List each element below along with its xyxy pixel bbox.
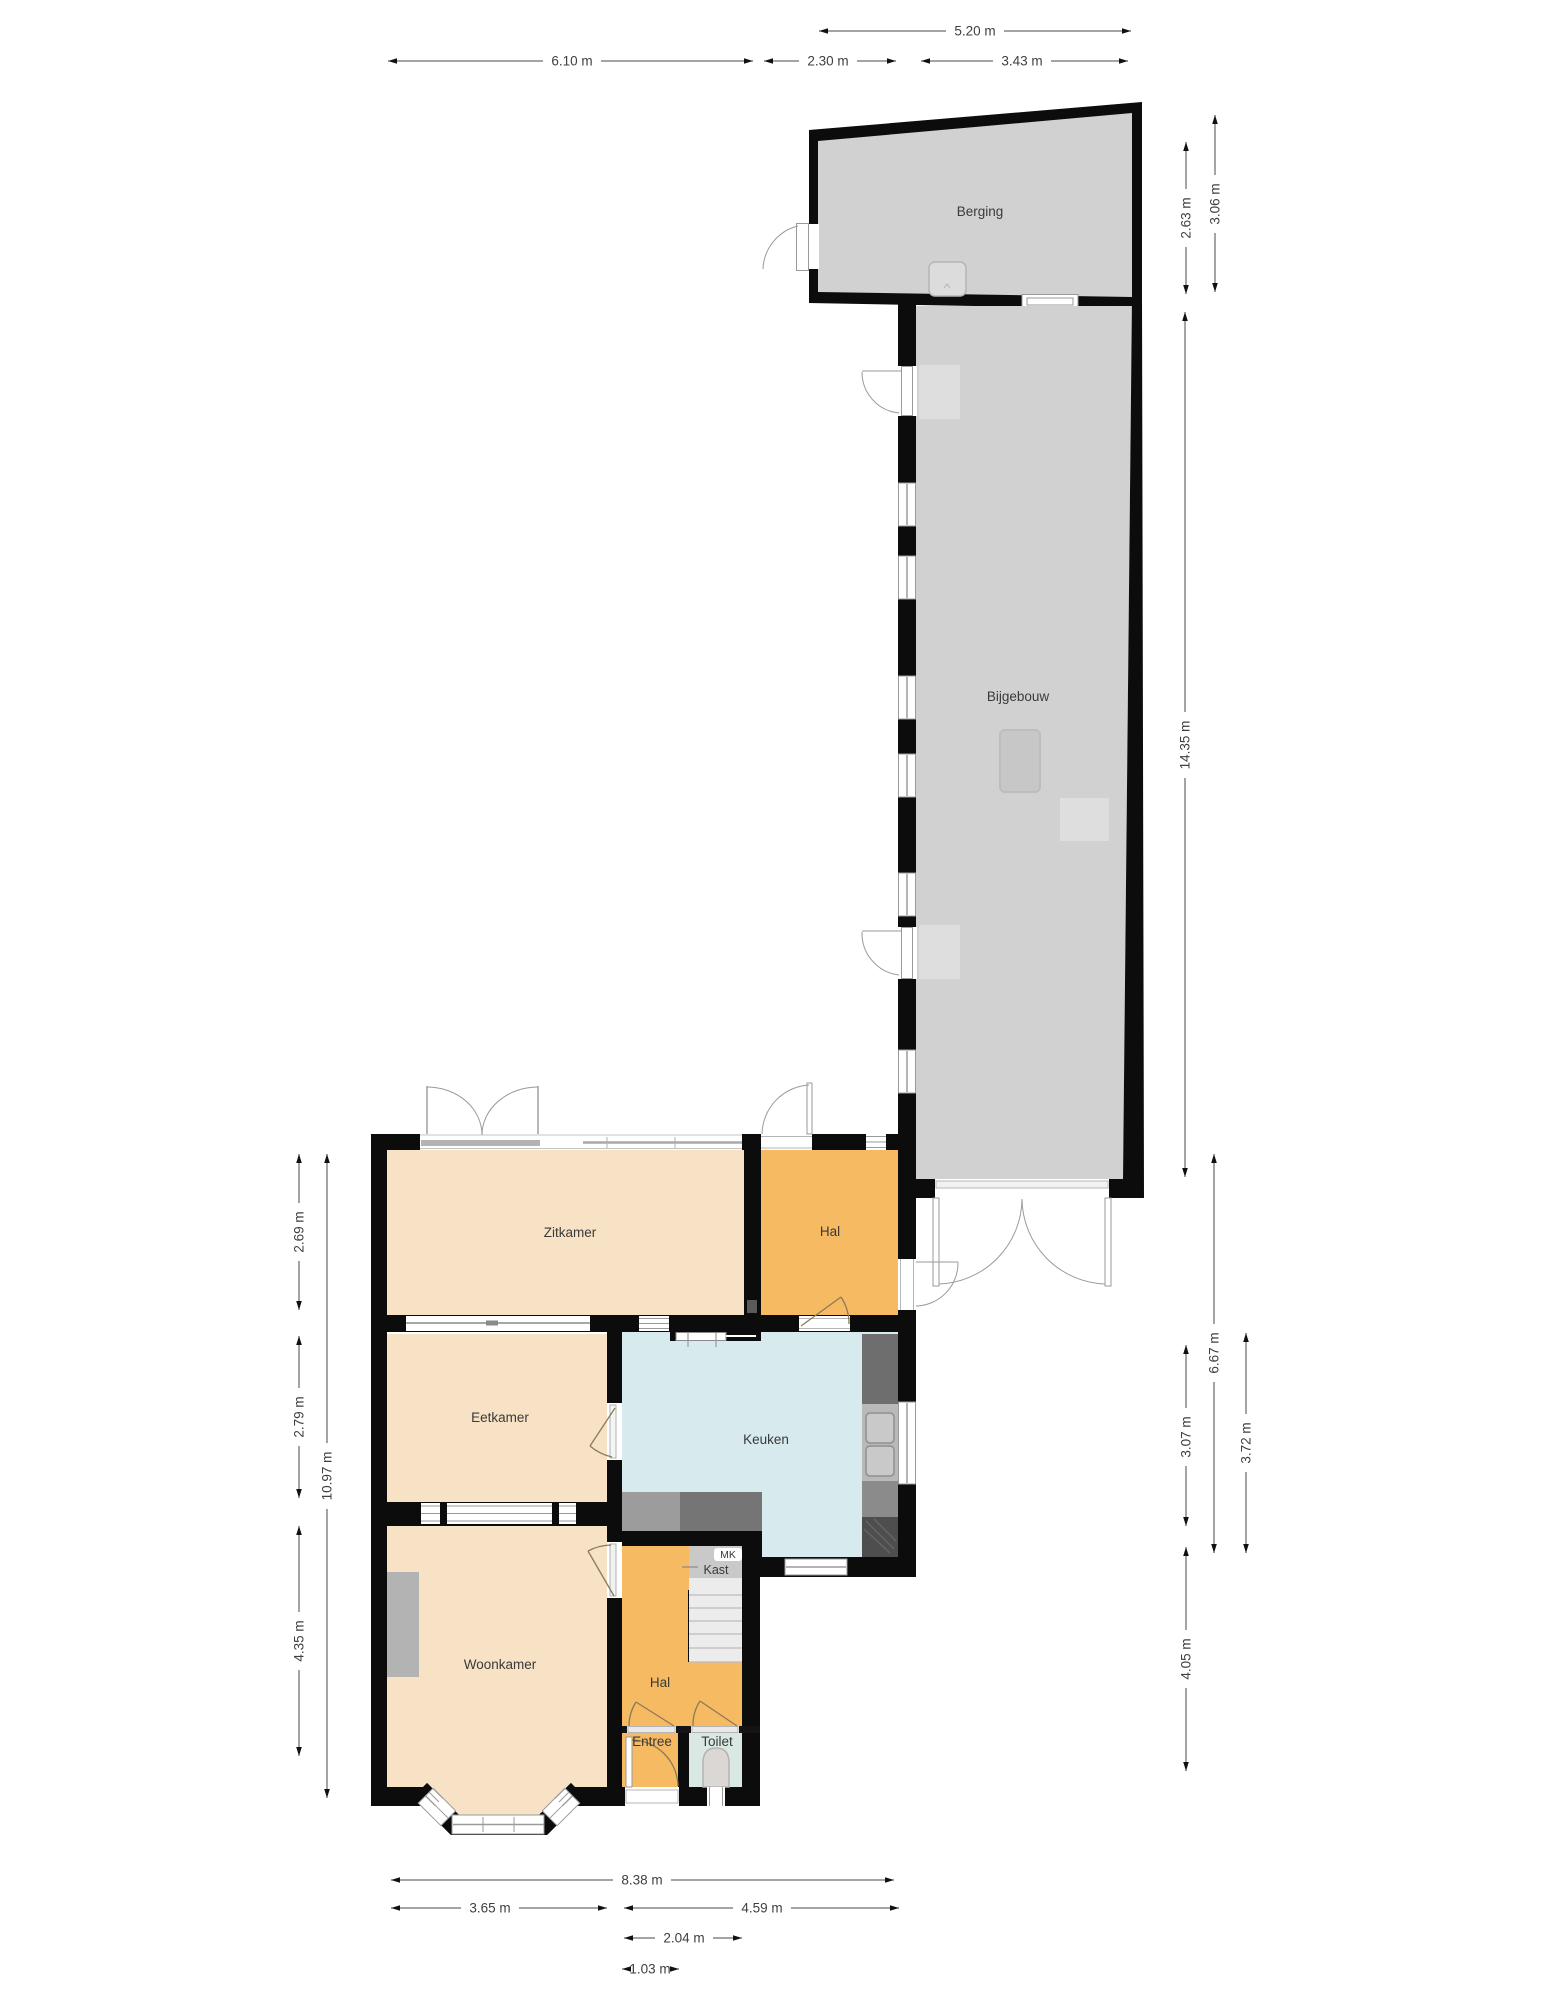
svg-text:2.79 m: 2.79 m [292,1396,307,1437]
svg-text:8.38 m: 8.38 m [621,1873,662,1888]
svg-text:Kast: Kast [703,1563,729,1577]
svg-text:5.20 m: 5.20 m [954,24,995,39]
svg-text:3.72 m: 3.72 m [1239,1422,1254,1463]
svg-text:3.43 m: 3.43 m [1001,54,1042,69]
svg-text:10.97 m: 10.97 m [320,1452,335,1501]
svg-text:4.35 m: 4.35 m [292,1620,307,1661]
svg-text:Woonkamer: Woonkamer [464,1657,537,1672]
svg-text:Bijgebouw: Bijgebouw [987,689,1050,704]
svg-text:14.35 m: 14.35 m [1178,721,1193,770]
svg-text:6.10 m: 6.10 m [551,54,592,69]
svg-text:Entree: Entree [632,1734,672,1749]
svg-text:Hal: Hal [820,1224,840,1239]
svg-text:2.69 m: 2.69 m [292,1211,307,1252]
svg-text:MK: MK [720,1549,736,1561]
svg-text:Berging: Berging [957,204,1004,219]
svg-text:2.63 m: 2.63 m [1179,197,1194,238]
svg-text:Zitkamer: Zitkamer [544,1225,597,1240]
svg-text:3.06 m: 3.06 m [1208,183,1223,224]
svg-text:1.03 m: 1.03 m [629,1962,670,1977]
svg-text:Eetkamer: Eetkamer [471,1410,529,1425]
svg-text:2.30 m: 2.30 m [807,54,848,69]
svg-text:6.67 m: 6.67 m [1207,1332,1222,1373]
svg-text:Toilet: Toilet [701,1734,733,1749]
svg-text:3.07 m: 3.07 m [1179,1416,1194,1457]
svg-text:4.59 m: 4.59 m [741,1901,782,1916]
svg-text:3.65 m: 3.65 m [469,1901,510,1916]
svg-text:Keuken: Keuken [743,1432,789,1447]
svg-text:Hal: Hal [650,1675,670,1690]
svg-text:4.05 m: 4.05 m [1179,1638,1194,1679]
svg-text:2.04 m: 2.04 m [663,1931,704,1946]
